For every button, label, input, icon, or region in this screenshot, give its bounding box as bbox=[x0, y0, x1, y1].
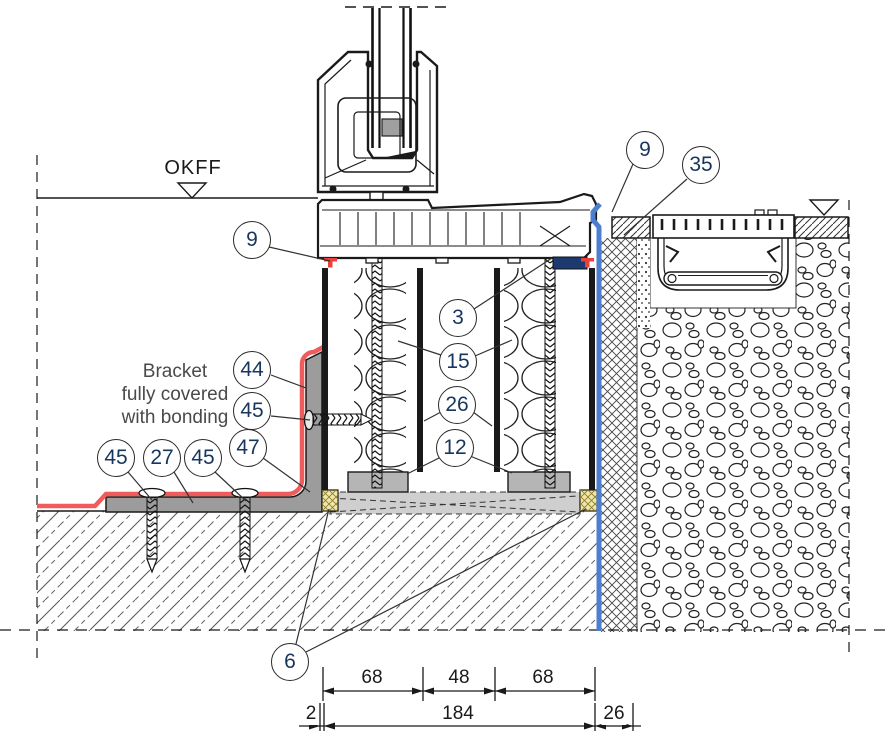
threshold-profile bbox=[318, 194, 596, 263]
callout-35: 35 bbox=[682, 146, 720, 184]
callout-6: 6 bbox=[271, 643, 309, 681]
xps-insulation-board bbox=[601, 238, 637, 632]
dim-2: 2 bbox=[304, 703, 319, 725]
drainage-channel bbox=[658, 238, 788, 290]
joint-sealing-tape-right bbox=[580, 490, 597, 511]
dim-26: 26 bbox=[601, 703, 626, 725]
callout-47: 47 bbox=[229, 429, 267, 467]
adhesive-bed bbox=[330, 492, 580, 514]
glazing-spacer bbox=[382, 119, 402, 136]
joint-sealing-tape-left bbox=[322, 490, 338, 511]
callout-45-left: 45 bbox=[97, 439, 135, 477]
level-triangle-right bbox=[810, 200, 838, 215]
callout-45-upper: 45 bbox=[233, 392, 271, 430]
dim-48: 48 bbox=[446, 667, 471, 689]
channel-grate bbox=[653, 210, 794, 238]
callout-27: 27 bbox=[143, 439, 181, 477]
level-label-okff: OKFF bbox=[158, 157, 228, 180]
callout-9-right: 9 bbox=[626, 131, 664, 169]
dim-68-right: 68 bbox=[530, 667, 555, 689]
window-sash-profile bbox=[318, 52, 437, 201]
paving-slab-left bbox=[612, 217, 650, 238]
callout-12: 12 bbox=[436, 429, 474, 467]
paving-slab-right bbox=[795, 217, 848, 238]
callout-15: 15 bbox=[439, 343, 477, 381]
callout-26: 26 bbox=[438, 386, 476, 424]
dim-68-left: 68 bbox=[359, 667, 384, 689]
frame-anchor-screw-left bbox=[372, 226, 382, 488]
level-triangle-left bbox=[178, 183, 206, 198]
callout-45-mid: 45 bbox=[184, 439, 222, 477]
floor-screed-hatch bbox=[37, 511, 597, 631]
drainage-strip-stipple bbox=[637, 238, 650, 328]
threshold-detail-drawing: OKFF Bracket fully covered with bonding … bbox=[0, 0, 893, 736]
level-line-okff bbox=[37, 183, 318, 198]
dim-184: 184 bbox=[440, 703, 476, 725]
callout-3: 3 bbox=[439, 299, 477, 337]
callout-9-left: 9 bbox=[233, 221, 271, 259]
callout-44: 44 bbox=[233, 351, 271, 389]
